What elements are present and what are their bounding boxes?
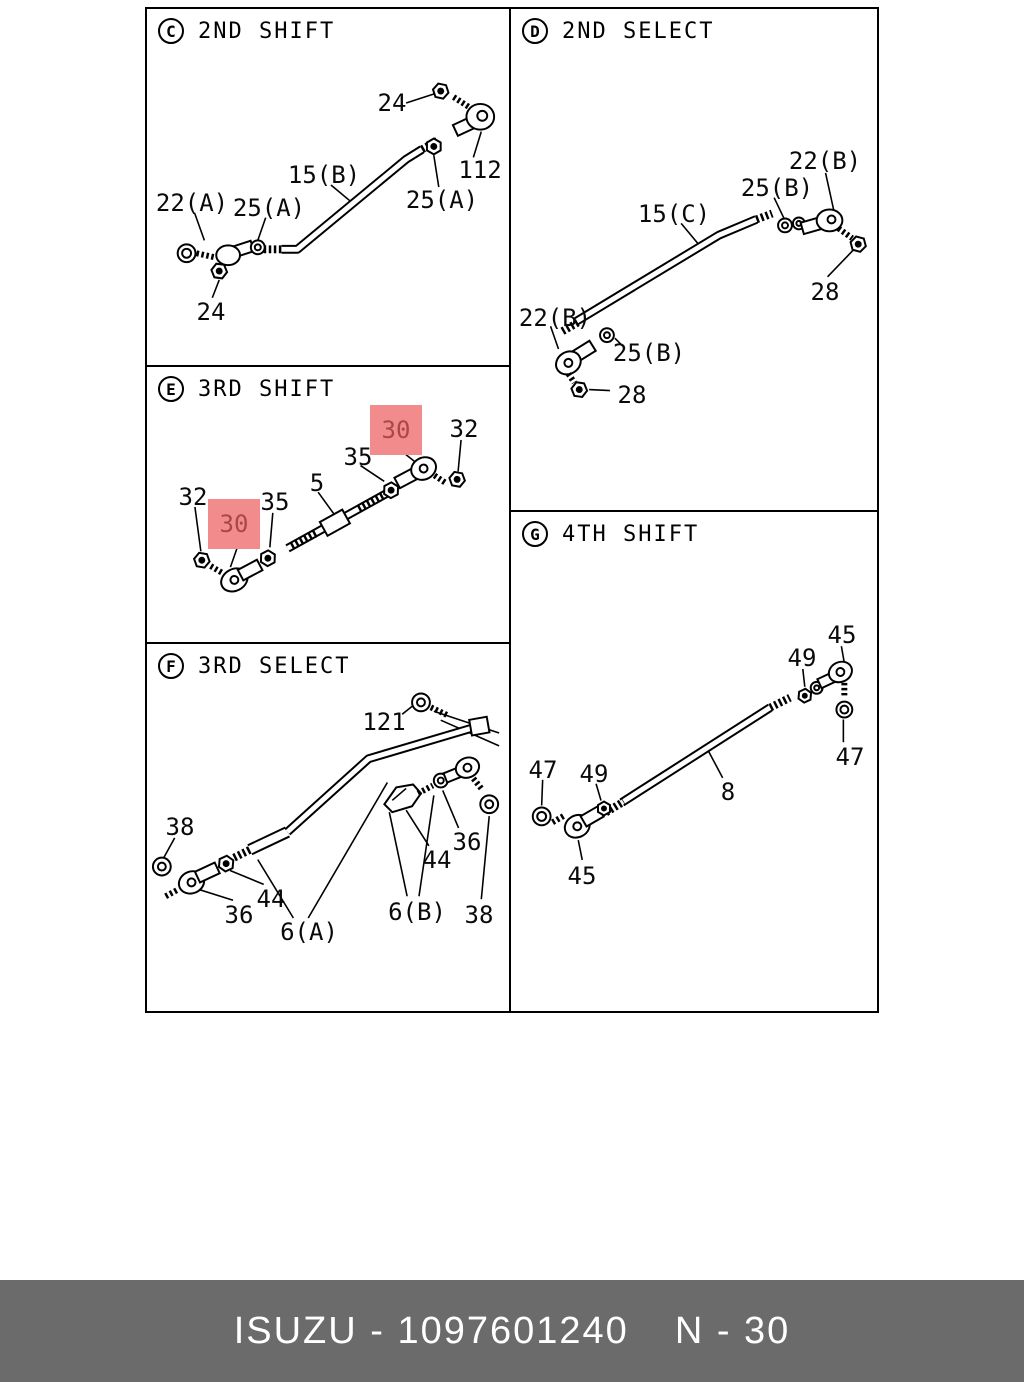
part-label-30-right-highlighted: 30 — [370, 405, 422, 455]
panel-3rd-shift: E 3RD SHIFT — [145, 365, 511, 644]
part-label-44-left: 44 — [257, 887, 286, 911]
part-label-38-left: 38 — [166, 815, 195, 839]
part-label-28-bottom: 28 — [618, 383, 647, 407]
part-label-25b-left: 25(B) — [613, 341, 685, 365]
part-label-49-left: 49 — [580, 762, 609, 786]
part-label-25a-left: 25(A) — [233, 196, 305, 220]
panel-code-badge: C — [158, 18, 184, 44]
part-label-38-right: 38 — [465, 903, 494, 927]
panel-2nd-shift: C 2ND SHIFT — [145, 7, 511, 367]
part-label-47-left: 47 — [529, 758, 558, 782]
footer-catalog-code: ISUZU - 1097601240 — [234, 1310, 629, 1353]
panel-title: 2ND SELECT — [562, 18, 714, 44]
panel-3rd-select: F 3RD SELECT — [145, 642, 511, 1013]
panel-header: G 4TH SHIFT — [522, 521, 699, 547]
linkage-drawing-2nd-select — [511, 9, 877, 510]
part-label-22b-left: 22(B) — [519, 306, 591, 330]
panel-header: D 2ND SELECT — [522, 18, 714, 44]
panel-title: 3RD SELECT — [198, 653, 350, 679]
part-label-6b: 6(B) — [388, 900, 446, 924]
panel-header: C 2ND SHIFT — [158, 18, 335, 44]
parts-catalog-page: C 2ND SHIFT — [0, 0, 1024, 1382]
panel-code-badge: F — [158, 653, 184, 679]
panel-title: 3RD SHIFT — [198, 376, 335, 402]
part-label-45-top: 45 — [828, 623, 857, 647]
part-label-36-right: 36 — [453, 830, 482, 854]
panel-code-badge: G — [522, 521, 548, 547]
part-label-25b-top: 25(B) — [741, 176, 813, 200]
part-label-24-bottom: 24 — [197, 300, 226, 324]
part-label-15b: 15(B) — [288, 163, 360, 187]
part-label-35-left: 35 — [261, 490, 290, 514]
part-label-112: 112 — [458, 158, 501, 182]
part-label-24-top: 24 — [378, 91, 407, 115]
part-label-30-left-highlighted: 30 — [208, 499, 260, 549]
panel-header: E 3RD SHIFT — [158, 376, 335, 402]
part-label-32-right: 32 — [450, 417, 479, 441]
panel-4th-shift: G 4TH SHIFT — [509, 510, 879, 1013]
part-label-22a: 22(A) — [156, 191, 228, 215]
part-label-45-bottom: 45 — [568, 864, 597, 888]
part-label-28-right: 28 — [811, 280, 840, 304]
part-label-36-left: 36 — [225, 903, 254, 927]
footer-page-code: N - 30 — [675, 1310, 790, 1353]
part-label-8: 8 — [721, 780, 735, 804]
part-label-47-right: 47 — [836, 745, 865, 769]
panel-code-badge: D — [522, 18, 548, 44]
part-label-22b-top: 22(B) — [789, 149, 861, 173]
part-label-44-right: 44 — [423, 848, 452, 872]
linkage-drawing-4th-shift — [511, 512, 877, 1011]
part-label-35-right: 35 — [344, 445, 373, 469]
part-label-121: 121 — [362, 710, 405, 734]
panel-header: F 3RD SELECT — [158, 653, 350, 679]
part-label-25a-right: 25(A) — [406, 188, 478, 212]
part-label-32-left: 32 — [179, 485, 208, 509]
part-label-15c: 15(C) — [638, 202, 710, 226]
part-label-49-top: 49 — [788, 646, 817, 670]
footer-bar: ISUZU - 1097601240 N - 30 — [0, 1280, 1024, 1382]
part-label-5: 5 — [310, 471, 324, 495]
panel-title: 2ND SHIFT — [198, 18, 335, 44]
panel-code-badge: E — [158, 376, 184, 402]
part-label-6a: 6(A) — [280, 920, 338, 944]
panel-title: 4TH SHIFT — [562, 521, 699, 547]
panel-2nd-select: D 2ND SELECT — [509, 7, 879, 512]
